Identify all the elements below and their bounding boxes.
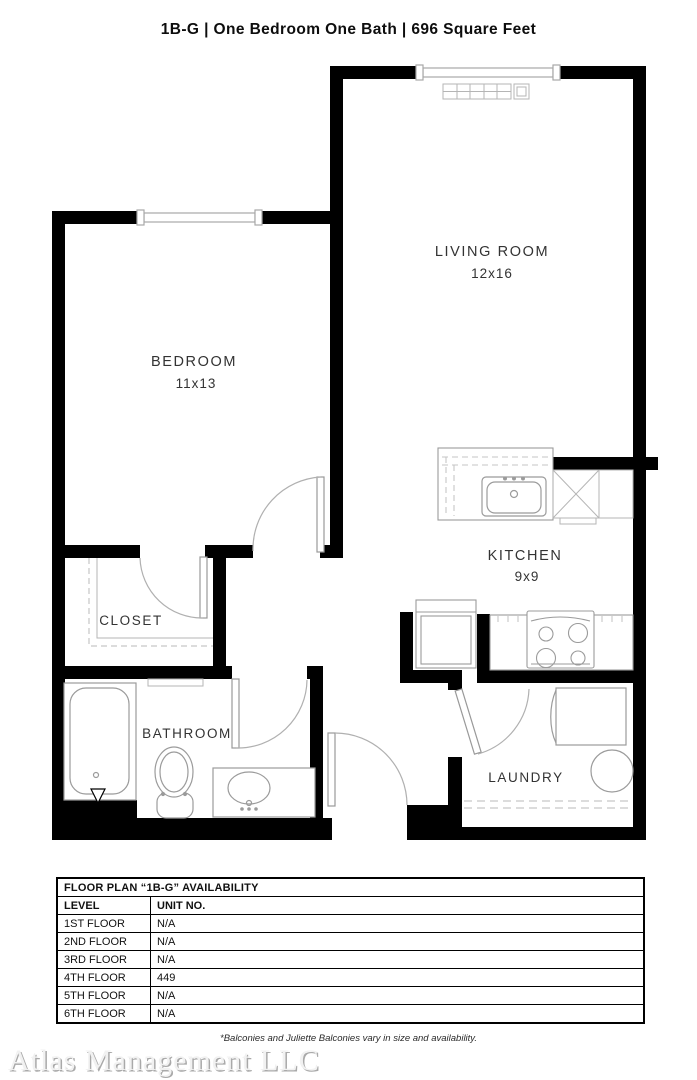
stove [490,611,633,670]
table-row: 6TH FLOOR N/A [57,1005,644,1024]
entry-door [328,733,407,806]
room-label-living-room: LIVING ROOM [435,244,549,260]
room-label-kitchen: KITCHEN [488,548,563,564]
cell-level: 3RD FLOOR [57,951,151,969]
cell-unit: N/A [151,951,645,969]
cell-level: 4TH FLOOR [57,969,151,987]
room-label-bathroom: BATHROOM [142,726,232,741]
living-room-window [416,65,560,80]
closet-shelves [89,558,213,646]
room-dims-bedroom: 11x13 [176,376,217,391]
cell-level: 6TH FLOOR [57,1005,151,1024]
washer [551,688,626,745]
laundry-door [455,689,529,754]
table-row: 3RD FLOOR N/A [57,951,644,969]
bathroom-shelf [148,679,203,686]
laundry-shelf [464,801,631,808]
room-dims-kitchen: 9x9 [515,569,540,584]
column-header-level: LEVEL [57,897,151,915]
cell-unit: 449 [151,969,645,987]
cell-unit: N/A [151,933,645,951]
balcony-footnote: *Balconies and Juliette Balconies vary i… [0,1033,697,1044]
cell-unit: N/A [151,987,645,1005]
floor-plan-drawing [0,0,697,870]
bathroom-vanity [213,768,315,817]
toilet [155,747,193,818]
bedroom-window [137,210,262,225]
baseboard-heater [443,84,529,99]
dryer [591,750,633,792]
cell-level: 1ST FLOOR [57,915,151,933]
table-row: 1ST FLOOR N/A [57,915,644,933]
room-label-bedroom: BEDROOM [151,354,237,370]
table-row: 4TH FLOOR 449 [57,969,644,987]
closet-door [140,557,207,618]
refrigerator [416,600,476,668]
cell-unit: N/A [151,1005,645,1024]
table-row: 5TH FLOOR N/A [57,987,644,1005]
table-row: 2ND FLOOR N/A [57,933,644,951]
column-header-unit-no: UNIT NO. [151,897,645,915]
cell-level: 2ND FLOOR [57,933,151,951]
bathroom-door [232,679,307,748]
cell-level: 5TH FLOOR [57,987,151,1005]
cell-unit: N/A [151,915,645,933]
bedroom-door [253,477,324,552]
bathtub [64,683,136,803]
kitchen-cabinet-x [553,470,633,524]
room-label-closet: CLOSET [99,613,163,628]
kitchen-sink [482,477,546,516]
room-dims-living-room: 12x16 [471,266,513,281]
room-label-laundry: LAUNDRY [488,770,563,785]
floor-plan-page: 1B-G | One Bedroom One Bath | 696 Square… [0,0,697,1080]
table-title-row: FLOOR PLAN “1B-G” AVAILABILITY [57,878,644,897]
company-watermark: Atlas Management LLC [8,1044,320,1078]
table-title: FLOOR PLAN “1B-G” AVAILABILITY [57,878,644,897]
table-header-row: LEVEL UNIT NO. [57,897,644,915]
availability-table: FLOOR PLAN “1B-G” AVAILABILITY LEVEL UNI… [56,877,645,1024]
